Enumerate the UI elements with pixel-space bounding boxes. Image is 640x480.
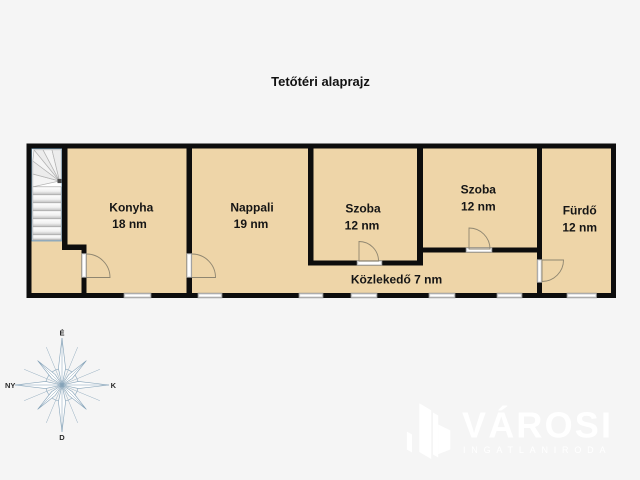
svg-text:Konyha: Konyha bbox=[109, 201, 153, 215]
svg-text:D: D bbox=[59, 433, 65, 442]
svg-text:É: É bbox=[59, 329, 64, 338]
svg-text:12 nm: 12 nm bbox=[345, 219, 380, 233]
svg-text:12 nm: 12 nm bbox=[562, 221, 597, 235]
svg-text:12 nm: 12 nm bbox=[461, 200, 496, 214]
svg-text:Közlekedő 7 nm: Közlekedő 7 nm bbox=[351, 273, 442, 287]
svg-text:K: K bbox=[111, 381, 117, 390]
svg-text:Szoba: Szoba bbox=[345, 202, 381, 216]
svg-text:18 nm: 18 nm bbox=[112, 217, 147, 231]
svg-text:Nappali: Nappali bbox=[230, 201, 273, 215]
svg-text:Fürdő: Fürdő bbox=[563, 204, 597, 218]
svg-text:19 nm: 19 nm bbox=[234, 217, 269, 231]
svg-text:NY: NY bbox=[5, 381, 15, 390]
svg-text:Szoba: Szoba bbox=[461, 183, 497, 197]
svg-text:INGATLANIRODA: INGATLANIRODA bbox=[463, 445, 611, 455]
svg-text:VÁROSI: VÁROSI bbox=[462, 405, 613, 446]
svg-text:Tetőtéri alaprajz: Tetőtéri alaprajz bbox=[271, 74, 370, 89]
